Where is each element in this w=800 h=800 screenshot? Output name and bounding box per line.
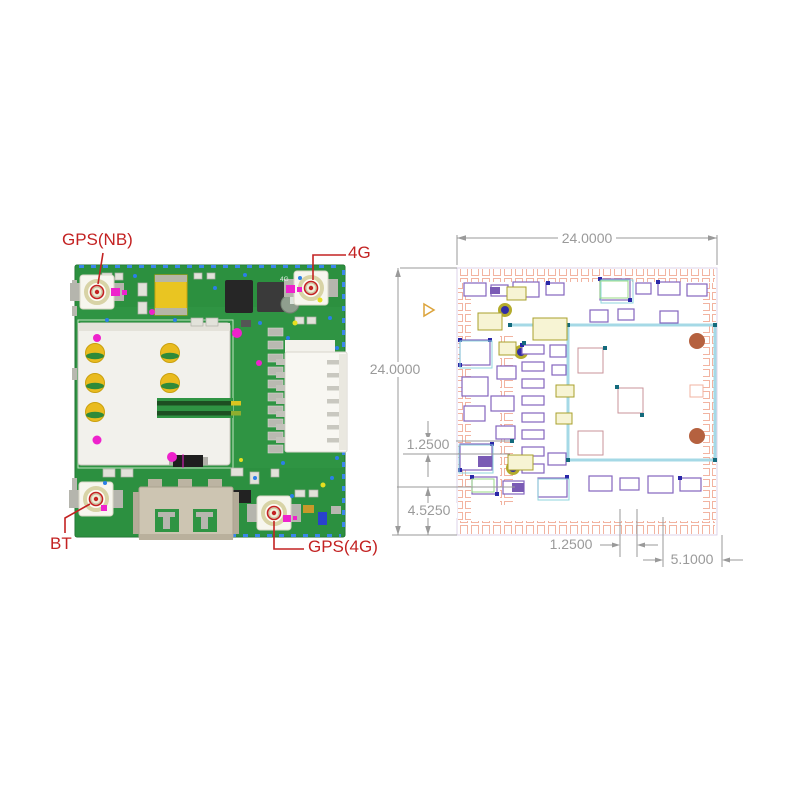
sim-notch-traces [157, 398, 241, 418]
usb-connector [133, 479, 239, 540]
diode [173, 455, 203, 467]
dim-left-offset: 4.5250 [408, 502, 451, 518]
cad-board [424, 268, 717, 535]
label-gps-nb: GPS(NB) [62, 231, 133, 250]
pcb-dimension-drawing: 24.0000 24.0000 1.2500 4.5250 1.2500 5.1… [360, 225, 795, 580]
dim-bottom-gap: 1.2500 [550, 536, 593, 552]
cad-mount-hole [689, 428, 705, 444]
cad-left-pads [458, 283, 471, 521]
module-product-image: 4G [0, 0, 800, 800]
silkscreen-4g-text: 4G [280, 276, 289, 283]
pcb-photo-panel: 4G [45, 228, 395, 563]
pcb-photo-graphic: 4G [45, 228, 395, 563]
label-bt: BT [50, 535, 72, 554]
cad-mount-hole [689, 333, 705, 349]
sim-card-holder [78, 323, 241, 465]
dim-left-height: 24.0000 [370, 361, 421, 377]
ic-chip-2 [257, 282, 285, 312]
cad-inner-pads [500, 333, 513, 505]
dim-left-gap: 1.2500 [407, 436, 450, 452]
ic-chip [225, 280, 253, 313]
orientation-arrow-marker [424, 304, 434, 316]
cad-top-pads [459, 269, 715, 282]
jst-connector [276, 340, 347, 452]
cad-bottom-pads [459, 521, 715, 534]
dim-bottom-offset: 5.1000 [671, 551, 714, 567]
dim-top-width: 24.0000 [562, 230, 613, 246]
small-dark-part [241, 320, 251, 327]
pcb-cad-graphic: 24.0000 24.0000 1.2500 4.5250 1.2500 5.1… [360, 225, 795, 580]
